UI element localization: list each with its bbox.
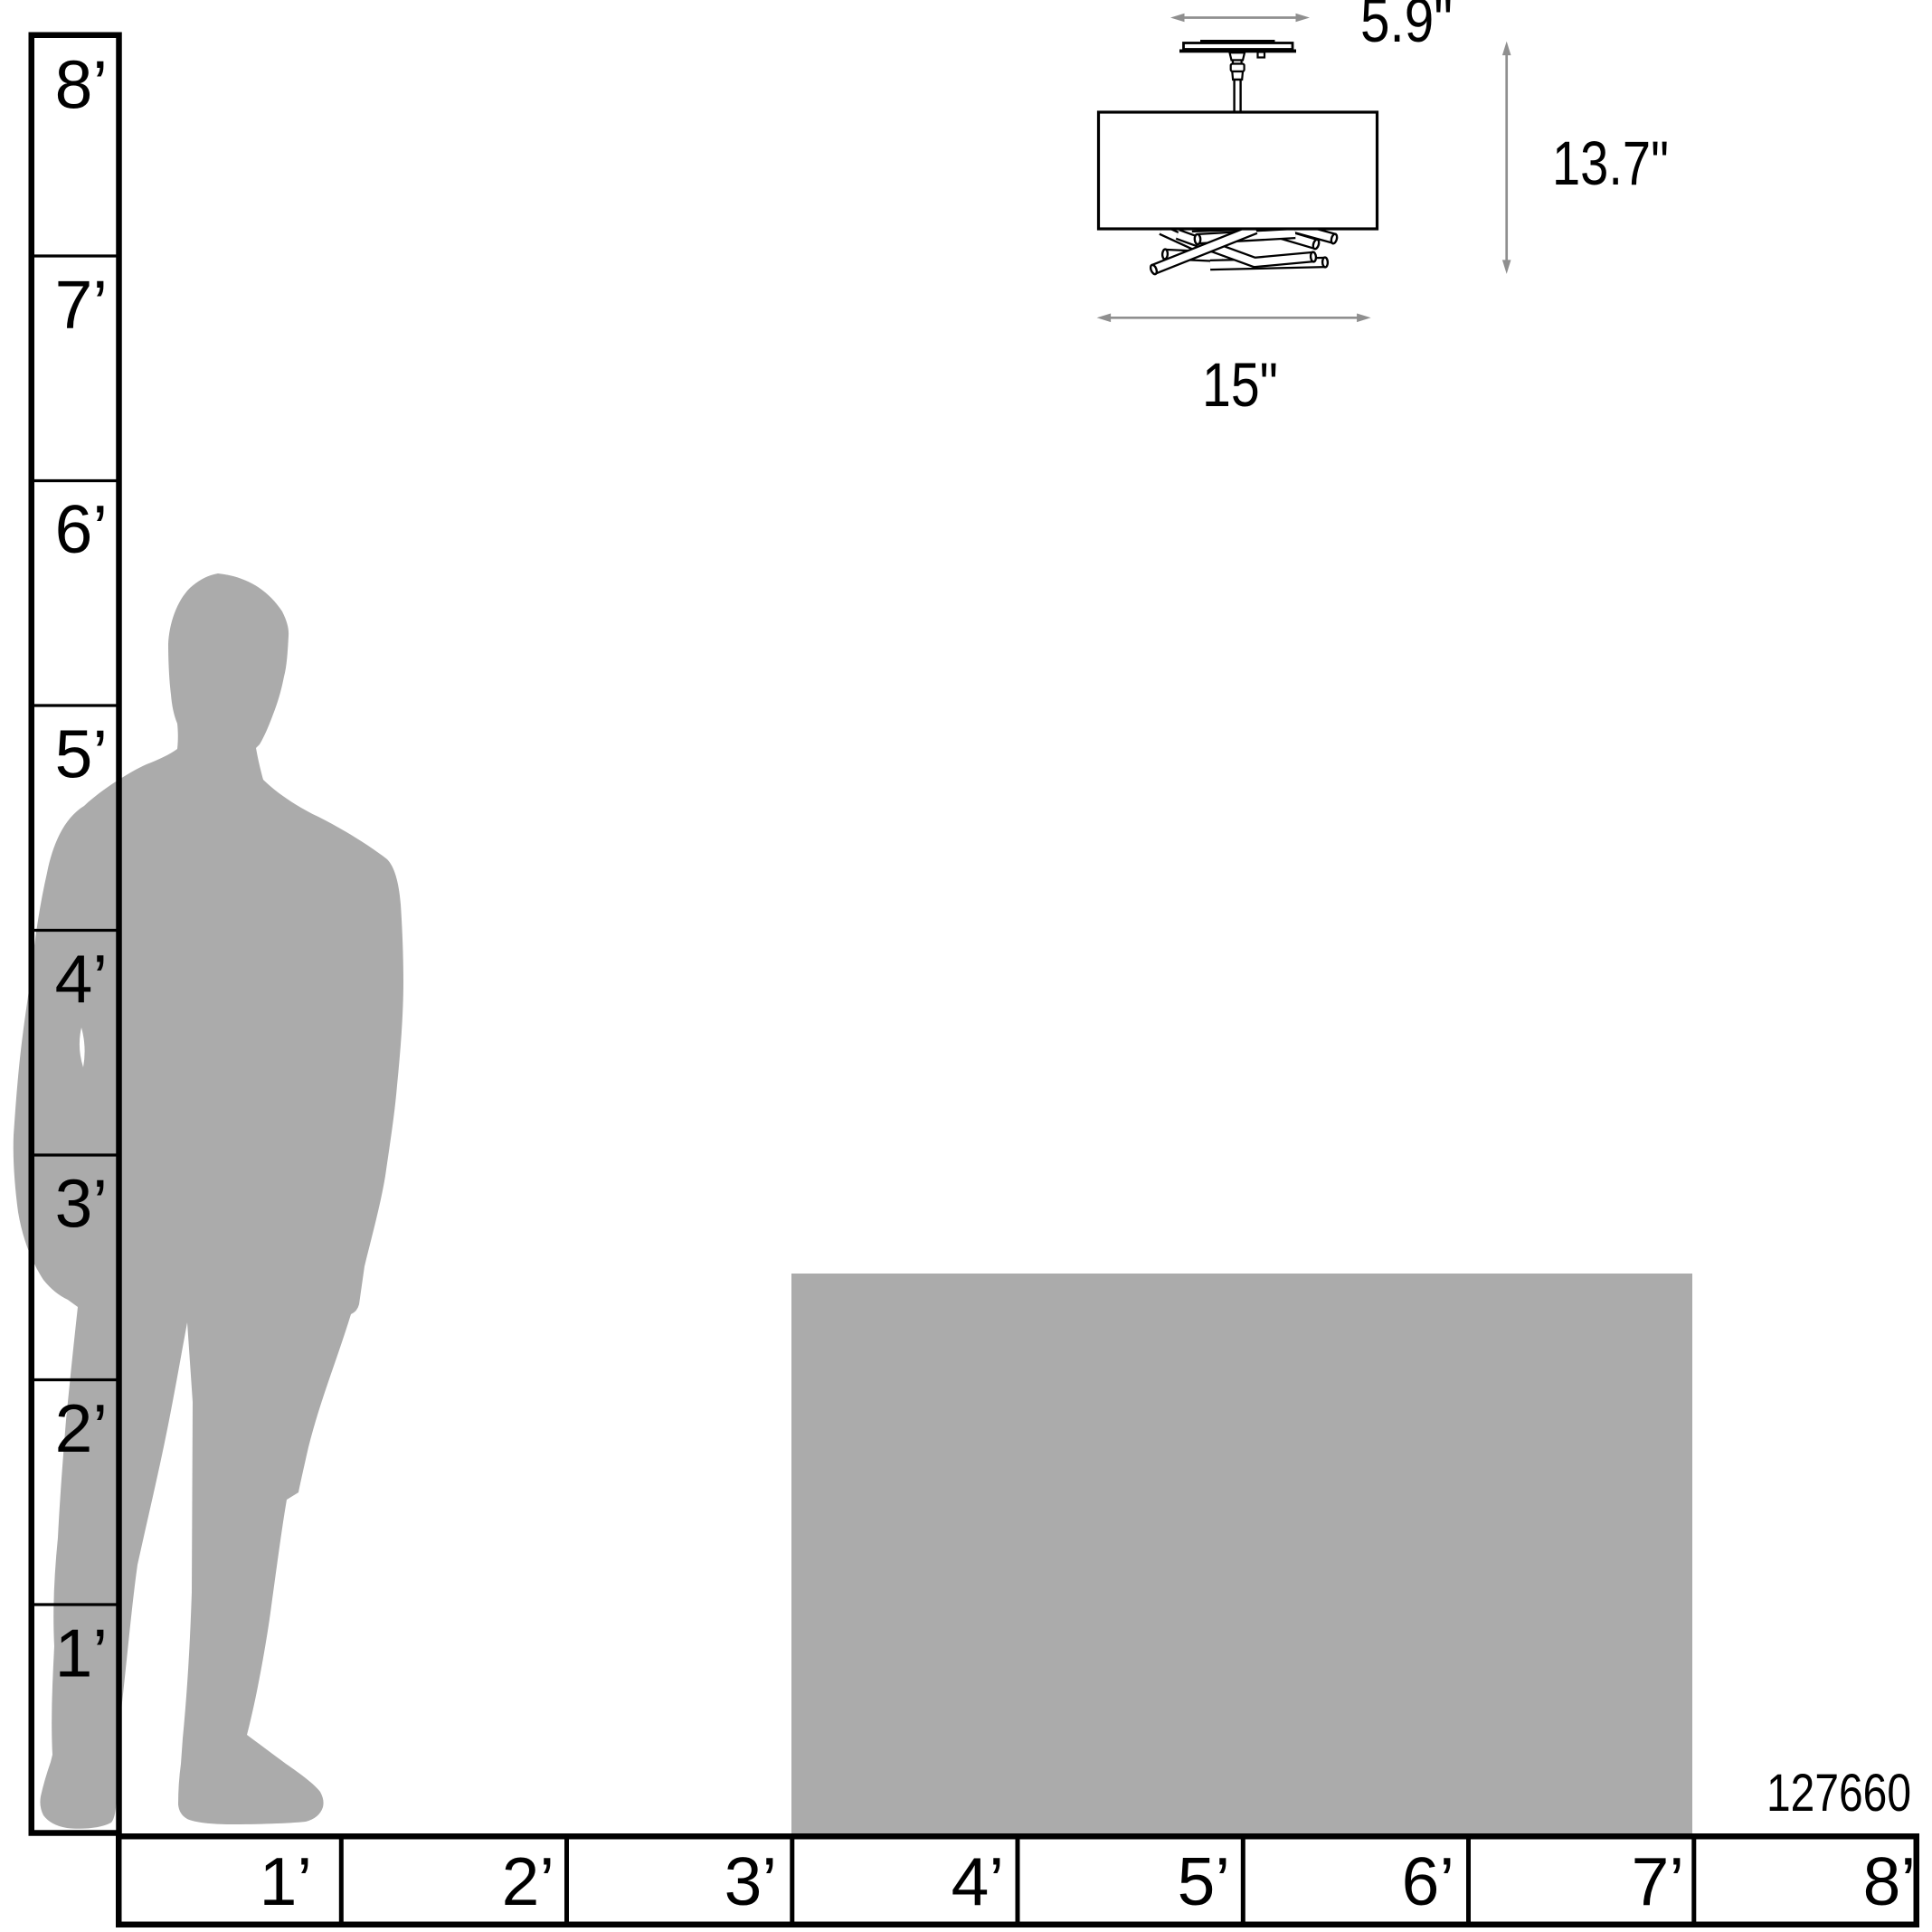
svg-text:7’: 7’: [55, 267, 108, 343]
svg-text:13.7": 13.7": [1552, 128, 1669, 198]
svg-text:6’: 6’: [1402, 1843, 1454, 1919]
svg-text:6’: 6’: [55, 491, 108, 567]
svg-text:4’: 4’: [55, 941, 108, 1017]
svg-text:3’: 3’: [724, 1843, 777, 1919]
svg-text:5.9": 5.9": [1360, 0, 1453, 55]
svg-text:4’: 4’: [952, 1843, 1004, 1919]
svg-text:2’: 2’: [502, 1843, 554, 1919]
svg-text:8’: 8’: [55, 47, 108, 123]
svg-text:7’: 7’: [1632, 1843, 1684, 1919]
svg-text:8’: 8’: [1863, 1843, 1916, 1919]
svg-text:1’: 1’: [260, 1843, 312, 1919]
svg-text:5’: 5’: [1178, 1843, 1230, 1919]
svg-text:1’: 1’: [55, 1615, 108, 1691]
svg-text:5’: 5’: [55, 716, 108, 792]
svg-text:15": 15": [1202, 350, 1278, 420]
svg-text:3’: 3’: [55, 1166, 108, 1242]
svg-text:2’: 2’: [55, 1390, 108, 1466]
svg-text:127660: 127660: [1766, 1764, 1911, 1823]
